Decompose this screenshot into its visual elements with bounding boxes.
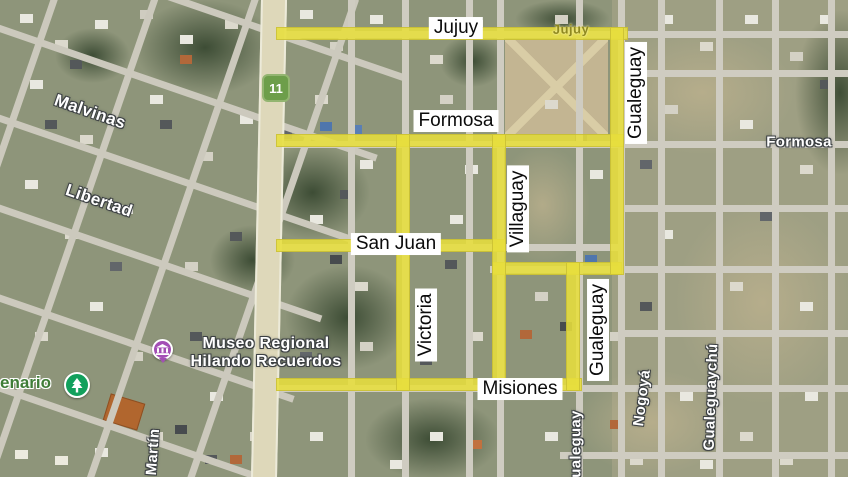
route-highlight-gualeguay-north [610,27,624,275]
street-label-gualeguay-south-road: Gualeguay [568,410,585,477]
route-highlight-villaguay [492,134,506,391]
street-label-jujuy-on-road: Jujuy [553,21,590,37]
overlay-label-misiones: Misiones [478,378,563,400]
overlay-label-villaguay: Villaguay [507,166,529,253]
overlay-label-gualeguay-south: Gualeguay [587,279,609,381]
plaza-block [505,40,608,134]
street-label-formosa-east: Formosa [766,134,831,151]
overlay-label-jujuy: Jujuy [429,17,483,39]
route-highlight-victoria [396,134,410,391]
overlay-label-san-juan: San Juan [351,233,441,255]
route-highlight-connector [492,262,622,275]
museum-pin-icon[interactable] [152,339,173,360]
route-highlight-formosa [276,134,624,147]
overlay-label-formosa: Formosa [414,110,499,132]
museum-label[interactable]: Museo Regional Hilando Recuerdos [191,335,342,371]
museum-label-line2: Hilando Recuerdos [191,353,342,371]
museum-building-icon [156,344,169,355]
museum-label-line1: Museo Regional [191,335,342,353]
tree-icon [70,378,84,393]
park-pin-icon[interactable] [64,372,90,398]
park-label-partial: enario [0,373,51,393]
satellite-map-canvas[interactable]: 11 Malvinas Libertad Martín Formosa Nogo… [0,0,848,477]
overlay-label-gualeguay-north: Gualeguay [625,42,647,144]
overlay-label-victoria: Victoria [415,288,437,361]
route-11-shield: 11 [262,74,290,102]
tree-cluster [365,398,500,477]
route-highlight-gualeguay-south [566,262,580,391]
street-label-martin: Martín [143,428,163,476]
route-11-number: 11 [269,81,283,96]
